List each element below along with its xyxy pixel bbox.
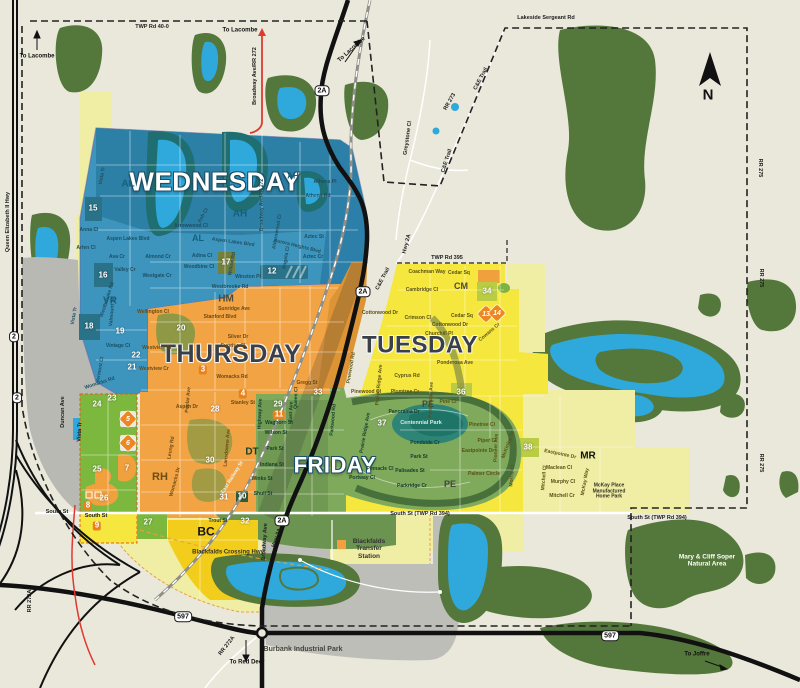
zone-badge-32: 32 — [241, 518, 250, 527]
diamond-marker-5: 5 — [120, 411, 137, 428]
zone-badge-3: 3 — [199, 366, 207, 375]
street-label: Aztec St — [304, 235, 324, 241]
street-label: Anna Cl — [80, 228, 99, 234]
zone-code-al: AL — [121, 178, 134, 189]
street-label: Indiana St — [260, 463, 284, 469]
zone-badge-33: 33 — [314, 389, 323, 398]
highway-shield-2: 2 — [12, 392, 22, 403]
street-label: Wilson St — [265, 431, 288, 437]
street-label: Panorama Dr — [388, 410, 419, 416]
direction-label: To Red Deer — [230, 660, 265, 667]
street-label: McKinley Dr — [501, 430, 516, 459]
street-label: Aurora Heights Blvd — [273, 238, 321, 255]
zone-badge-36: 36 — [457, 389, 466, 398]
street-label: Winston Pl — [235, 275, 261, 281]
zone-badge-12: 12 — [268, 268, 277, 277]
street-label: Vista Tr — [71, 307, 80, 326]
street-label: Queen Cl — [294, 387, 300, 409]
street-label: Churchill Pl — [425, 332, 453, 338]
highway-shield-597: 597 — [601, 630, 619, 641]
zone-badge-34: 34 — [483, 288, 492, 297]
street-label: Pinewood Rd — [346, 352, 357, 384]
street-label: Westbrooke Rd — [212, 285, 249, 291]
street-label: Crimson Cl — [405, 316, 432, 322]
street-label: Pioneer Ave — [494, 434, 501, 463]
street-label: Shull St — [254, 492, 273, 498]
street-label: Sunridge Ave — [218, 307, 250, 313]
zone-badge-25: 25 — [93, 466, 102, 475]
zone-code-cm: CM — [454, 281, 468, 291]
street-label: Portway Cl — [349, 476, 375, 482]
street-label: Murphy Cl — [551, 480, 575, 486]
zone-label-wednesday: WEDNESDAY — [129, 167, 300, 196]
road-label: RR 275 — [758, 454, 764, 473]
street-label: Almond Cr — [145, 255, 171, 261]
zone-badge-24: 24 — [93, 401, 102, 410]
street-label: Westview Cr — [142, 346, 172, 352]
zone-badge-23: 23 — [108, 395, 117, 404]
street-label: Westview Cr — [139, 367, 169, 373]
street-label: Ava Cr — [109, 255, 125, 261]
road-label: Queen Elizabeth II Hwy — [5, 192, 11, 252]
street-label: Parkridge Cr — [397, 484, 427, 490]
street-label: Sunrise Cl — [221, 344, 246, 350]
street-label: Arlen Cl — [76, 246, 95, 252]
compass-north-label: N — [703, 88, 714, 105]
poi-label: Blackfalds Transfer Station — [353, 538, 386, 560]
street-label: Plumtree Cr — [391, 390, 419, 396]
street-label: Angela Cl — [282, 246, 292, 270]
street-label: Palmer Circle — [468, 472, 500, 478]
road-label: RR 275 — [758, 269, 764, 288]
zone-badge-7: 7 — [125, 465, 129, 474]
road-label: Hwy 2A — [271, 528, 284, 549]
street-label: Wellington Cl — [137, 310, 169, 316]
road-label: South St — [85, 513, 108, 519]
street-label: Athens Rd — [306, 194, 331, 200]
zone-badge-37: 37 — [378, 420, 387, 429]
street-label: Arrowwood Cl — [174, 224, 208, 230]
zone-badge-11: 11 — [273, 411, 285, 420]
street-label: Aspen Lakes Blvd — [211, 237, 254, 249]
zone-code-ah: AH — [287, 173, 299, 182]
street-label: Parkwood Rd — [330, 404, 338, 436]
street-label: Womacks Rd — [216, 375, 247, 381]
street-label: Ponderosa Ave — [429, 382, 436, 418]
zone-badge-16: 16 — [99, 272, 108, 281]
collection-zone-map: WEDNESDAYTHURSDAYTUESDAYFRIDAYALAHAHALVR… — [0, 0, 800, 688]
diamond-marker-6: 6 — [120, 435, 137, 452]
zone-badge-29: 29 — [274, 401, 283, 410]
zone-code-dt: DT — [245, 446, 258, 457]
road-label: South St (TWP Rd 394) — [390, 511, 449, 517]
street-label: Womacks Rd — [84, 377, 116, 392]
street-label: Broadway Ave/RR 272 — [260, 179, 266, 231]
street-label: Mitchell Cr — [549, 494, 575, 500]
zone-badge-38: 38 — [524, 444, 533, 453]
road-label: Greystone Cl — [403, 121, 414, 156]
poi-label: Blackfalds Crossing Hwy — [192, 550, 264, 557]
highway-shield-2: 2 — [9, 331, 19, 342]
street-label: Aztec Cr — [303, 255, 323, 261]
zone-badge-10: 10 — [238, 493, 247, 502]
street-label: Trout St — [209, 519, 228, 525]
street-label: Gregg St — [296, 381, 317, 387]
road-label: Lakeside Sergeant Rd — [517, 15, 574, 21]
zone-badge-18: 18 — [85, 323, 94, 332]
road-label: RR 272A — [218, 635, 237, 657]
road-label: Duncan Ave — [60, 396, 66, 427]
street-label: McKay Way — [581, 468, 591, 496]
street-label: Woodbine Cl — [184, 265, 214, 271]
road-label: South St (TWP Rd 394) — [627, 515, 686, 521]
road-label: South St — [46, 509, 69, 515]
direction-label: To Lacombe — [20, 54, 55, 61]
map-labels-layer: WEDNESDAYTHURSDAYTUESDAYFRIDAYALAHAHALVR… — [0, 0, 800, 688]
street-label: Silver Dr — [228, 335, 249, 341]
road-label: C&E Trail — [440, 148, 453, 173]
street-label: Prairie Ridge Ave — [375, 364, 384, 405]
street-label: Cambridge Cl — [406, 288, 439, 294]
street-label: Maclean Cl — [546, 466, 572, 472]
zone-code-mr: MR — [580, 450, 596, 461]
zone-badge-26: 26 — [100, 495, 109, 504]
street-label: Winks St — [251, 477, 272, 483]
street-label: Highway Ave — [258, 399, 265, 430]
zone-badge-28: 28 — [211, 406, 220, 415]
street-label: Cowans Cr — [478, 322, 502, 343]
street-label: Leung Rd — [167, 436, 177, 460]
street-label: Pine Cl — [440, 400, 457, 406]
poi-label: Mary & Cliff Soper Natural Area — [679, 554, 735, 569]
street-label: Athens Pl — [313, 180, 336, 186]
zone-badge-20: 20 — [177, 325, 186, 334]
highway-shield-2a: 2A — [315, 85, 330, 96]
zone-code-rh: RH — [152, 471, 168, 483]
direction-label: To Lacombe — [223, 28, 258, 35]
direction-label: To Joffre — [684, 652, 709, 659]
poi-label: Burbank Industrial Park — [264, 646, 343, 654]
highway-shield-2a: 2A — [356, 286, 371, 297]
street-label: Eastpointe Dr — [462, 449, 495, 455]
street-label: Park St — [410, 455, 427, 461]
street-label: Coachman Way — [408, 270, 445, 276]
street-label: Ponderosa Ave — [437, 361, 473, 367]
street-label: Westgate Cr — [142, 274, 171, 280]
zone-code-al: AL — [192, 233, 204, 243]
road-label: Broadway Ave/RR 272 — [252, 47, 258, 105]
road-label: C&E Trail — [375, 267, 392, 291]
highway-shield-2a: 2A — [275, 515, 290, 526]
street-label: Morris Cl — [509, 465, 516, 487]
zone-badge-15: 15 — [89, 205, 98, 214]
zone-badge-22: 22 — [132, 352, 141, 361]
street-label: Stanley St — [231, 401, 255, 407]
zone-badge-19: 19 — [116, 328, 125, 337]
road-label: TWP Rd 40-0 — [135, 24, 169, 30]
zone-badge-9: 9 — [93, 522, 101, 531]
street-label: Adina Cl — [192, 254, 212, 260]
zone-code-bc: BC — [197, 525, 214, 538]
direction-label: To Lacombe — [337, 36, 367, 64]
street-label: Ash Cl — [198, 208, 211, 225]
zone-badge-21: 21 — [128, 364, 137, 373]
street-label: Womacks Dr — [169, 467, 182, 498]
road-label: TWP Rd 395 — [431, 255, 463, 261]
road-label: C&E Trail — [473, 67, 490, 91]
road-label: Vista Tr — [76, 422, 83, 442]
zone-badge-8: 8 — [84, 502, 92, 511]
street-label: Pondside Cr — [410, 441, 439, 447]
street-label: Aspen Lakes Blvd — [106, 237, 149, 243]
zone-badge-27: 27 — [144, 519, 153, 528]
street-label: Vintage Cl — [106, 344, 130, 350]
poi-label: McKay Place Manufactured Home Park — [593, 484, 626, 501]
zone-badge-30: 30 — [206, 457, 215, 466]
road-label: RR 272A — [27, 590, 33, 613]
street-label: Willow Rd — [228, 252, 238, 276]
street-label: Stanford Blvd — [204, 315, 237, 321]
street-label: Valley Cr — [114, 268, 135, 274]
diamond-marker-14: 14 — [489, 305, 506, 322]
poi-label: Centennial Park — [400, 420, 442, 426]
zone-badge-31: 31 — [220, 494, 229, 503]
street-label: Park St — [266, 447, 283, 453]
street-label: Eastpointe Dr — [544, 449, 577, 461]
street-label: Prairie Ridge Ave — [360, 412, 373, 453]
street-label: Cedar Sq — [448, 271, 470, 277]
zone-label-tuesday: TUESDAY — [362, 333, 478, 360]
street-label: Vista Tr — [99, 167, 108, 186]
street-label: Pinewood Cl — [351, 390, 381, 396]
zone-code-ah: AH — [233, 208, 247, 219]
street-label: Cyprus Rd — [394, 374, 419, 380]
road-label: RR 275 — [757, 159, 763, 178]
road-label: RR 273 — [443, 92, 458, 111]
street-label: Cottonwood Dr — [432, 323, 468, 329]
street-label: Pinetree Cl — [469, 423, 495, 429]
street-label: Pinnacle Cl — [367, 467, 394, 473]
street-label: Cedar Sq — [451, 314, 473, 320]
zone-code-pe: PE — [444, 479, 456, 489]
street-label: Cottonwood Dr — [362, 311, 398, 317]
zone-code-hm: HM — [218, 293, 234, 304]
highway-shield-597: 597 — [174, 611, 192, 622]
zone-badge-4: 4 — [239, 390, 247, 399]
street-label: Lansdowne Ave — [224, 429, 233, 467]
street-label: Palisades St — [395, 469, 424, 475]
road-label: Hwy 2A — [401, 234, 412, 255]
